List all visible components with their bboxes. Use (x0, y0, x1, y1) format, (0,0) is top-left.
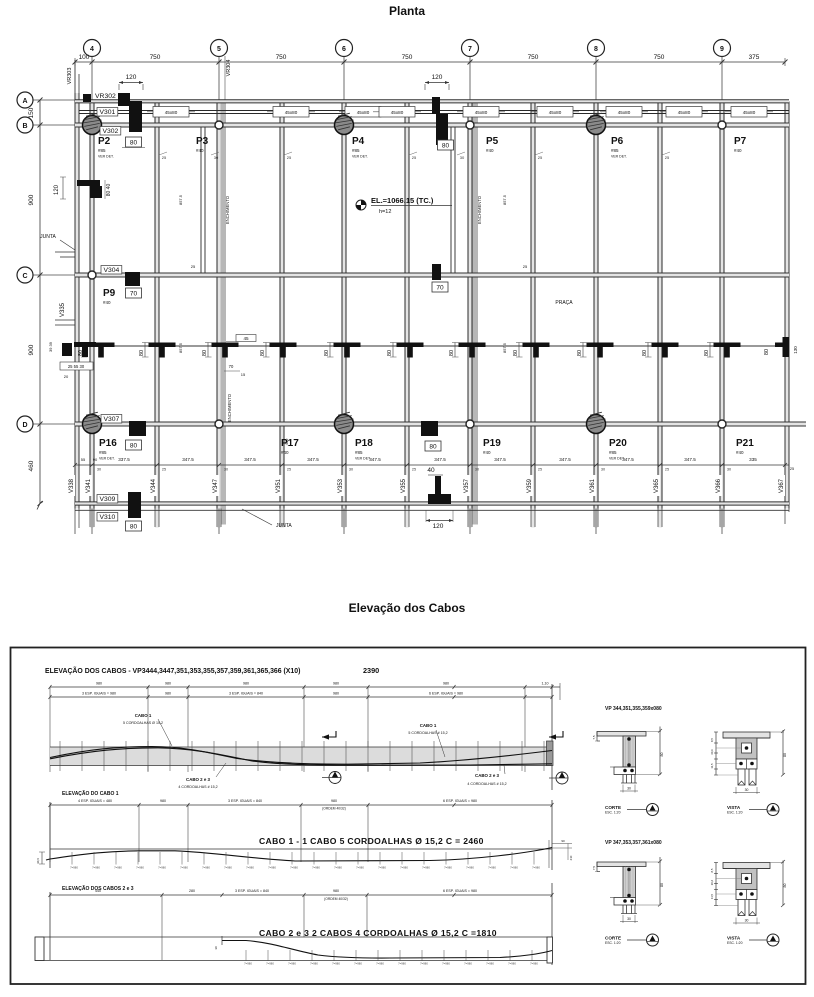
svg-text:80: 80 (260, 350, 266, 356)
svg-text:980: 980 (333, 682, 339, 686)
svg-text:80: 80 (642, 350, 648, 356)
svg-text:P4: P4 (352, 136, 365, 147)
svg-text:45: 45 (243, 336, 249, 341)
svg-text:7=980: 7=980 (400, 866, 408, 870)
svg-text:CABO 1: CABO 1 (135, 713, 152, 718)
svg-text:25: 25 (538, 468, 542, 472)
svg-text:90: 90 (93, 457, 98, 462)
svg-text:40: 40 (427, 467, 435, 474)
svg-text:7=980: 7=980 (224, 866, 232, 870)
svg-text:80: 80 (429, 444, 437, 451)
svg-text:7=980: 7=980 (508, 962, 516, 966)
svg-text:PRAÇA: PRAÇA (555, 300, 573, 306)
svg-text:80: 80 (764, 349, 770, 355)
svg-text:80: 80 (130, 524, 138, 531)
svg-text:347.5: 347.5 (684, 457, 696, 462)
svg-text:100: 100 (79, 54, 90, 61)
svg-text:7=980: 7=980 (466, 866, 474, 870)
svg-text:25: 25 (412, 468, 416, 472)
svg-text:11,5: 11,5 (710, 763, 714, 769)
svg-text:120: 120 (126, 74, 137, 81)
svg-text:80: 80 (783, 753, 787, 757)
svg-text:90: 90 (561, 839, 565, 843)
svg-text:25: 25 (538, 155, 543, 160)
svg-text:3 ESP. IGUAIS = 840: 3 ESP. IGUAIS = 840 (235, 889, 269, 893)
svg-text:3 ESP. IGUAIS = 840: 3 ESP. IGUAIS = 840 (229, 692, 263, 696)
svg-text:45x80: 45x80 (165, 110, 178, 115)
svg-text:80: 80 (783, 884, 787, 888)
svg-text:7=980: 7=980 (136, 866, 144, 870)
svg-text:30: 30 (727, 468, 731, 472)
svg-text:V365: V365 (654, 478, 660, 493)
svg-text:900: 900 (28, 344, 35, 355)
svg-text:80: 80 (704, 350, 710, 356)
svg-text:80: 80 (442, 143, 450, 150)
svg-text:120: 120 (432, 74, 443, 81)
svg-text:#40: #40 (483, 450, 491, 455)
svg-text:#85: #85 (609, 450, 617, 455)
svg-text:P20: P20 (609, 438, 627, 449)
svg-text:ESC. 1:20: ESC. 1:20 (605, 941, 621, 945)
svg-text:7=980: 7=980 (378, 866, 386, 870)
svg-text:V335: V335 (60, 302, 66, 317)
svg-text:VER DET.: VER DET. (611, 155, 627, 159)
svg-text:335: 335 (749, 457, 757, 462)
svg-text:7=980: 7=980 (488, 866, 496, 870)
svg-text:P21: P21 (736, 438, 754, 449)
svg-text:D: D (22, 422, 27, 429)
svg-text:30: 30 (224, 468, 228, 472)
svg-text:P3: P3 (196, 136, 209, 147)
svg-text:80: 80 (387, 350, 393, 356)
svg-text:11,5: 11,5 (710, 893, 714, 899)
svg-text:P16: P16 (99, 438, 117, 449)
svg-text:V359: V359 (527, 478, 533, 493)
svg-text:V344: V344 (151, 478, 157, 493)
svg-text:980: 980 (243, 682, 249, 686)
svg-text:4: 4 (90, 46, 94, 53)
svg-text:CABO 1 - 1 CABO 5 CORDOALHAS: CABO 1 - 1 CABO 5 CORDOALHAS Ø 15,2 C = … (259, 836, 484, 846)
svg-text:P2: P2 (98, 136, 111, 147)
svg-text:750: 750 (150, 54, 161, 61)
svg-text:7=980: 7=980 (310, 962, 318, 966)
svg-text:7=980: 7=980 (180, 866, 188, 870)
svg-text:V307: V307 (103, 416, 119, 423)
svg-text:VR303: VR303 (67, 68, 73, 85)
svg-text:80 40: 80 40 (106, 184, 112, 197)
svg-text:#85: #85 (611, 148, 619, 153)
svg-text:25: 25 (287, 468, 291, 472)
svg-text:440: 440 (95, 889, 101, 893)
svg-text:25: 25 (162, 468, 166, 472)
svg-text:ENCHIMENTO: ENCHIMENTO (477, 195, 482, 224)
svg-text:Elevação dos Cabos: Elevação dos Cabos (349, 601, 466, 615)
svg-text:45x80: 45x80 (391, 110, 404, 115)
svg-text:V338: V338 (69, 478, 75, 493)
svg-text:ESC. 1:20: ESC. 1:20 (605, 811, 621, 815)
svg-text:20: 20 (64, 374, 69, 379)
svg-text:460: 460 (28, 460, 35, 471)
svg-text:750: 750 (654, 54, 665, 61)
svg-text:7=980: 7=980 (442, 962, 450, 966)
svg-text:V341: V341 (86, 478, 92, 493)
svg-text:375: 375 (749, 54, 760, 61)
svg-text:5: 5 (217, 46, 221, 53)
svg-text:45x80: 45x80 (357, 110, 370, 115)
svg-text:7=980: 7=980 (266, 962, 274, 966)
svg-text:80: 80 (513, 350, 519, 356)
svg-text:VER DET.: VER DET. (98, 155, 114, 159)
svg-text:280: 280 (189, 889, 195, 893)
svg-text:80: 80 (449, 350, 455, 356)
svg-text:750: 750 (276, 54, 287, 61)
svg-text:P18: P18 (355, 438, 373, 449)
svg-text:7=980: 7=980 (332, 962, 340, 966)
svg-text:ELEVAÇÃO DOS CABOS - VP3444,34: ELEVAÇÃO DOS CABOS - VP3444,3447,351,353… (45, 666, 300, 675)
svg-text:347.5: 347.5 (307, 457, 319, 462)
svg-text:7=980: 7=980 (444, 866, 452, 870)
svg-text:857.5: 857.5 (502, 194, 507, 205)
svg-text:VER DET.: VER DET. (99, 457, 115, 461)
svg-text:7=980: 7=980 (312, 866, 320, 870)
svg-text:45x80: 45x80 (678, 110, 691, 115)
svg-text:7=980: 7=980 (202, 866, 210, 870)
svg-text:#40: #40 (196, 148, 204, 153)
svg-text:857.5: 857.5 (178, 342, 183, 353)
svg-text:Planta: Planta (389, 4, 425, 18)
svg-text:VR302: VR302 (95, 93, 116, 100)
svg-text:CORTE: CORTE (605, 805, 621, 810)
svg-text:980: 980 (160, 799, 166, 803)
svg-text:7=980: 7=980 (158, 866, 166, 870)
svg-text:347.5: 347.5 (244, 457, 256, 462)
svg-text:V357: V357 (464, 478, 470, 493)
svg-text:25: 25 (191, 264, 196, 269)
svg-text:7=980: 7=980 (92, 866, 100, 870)
svg-text:39 39: 39 39 (48, 341, 53, 352)
svg-text:V351: V351 (276, 478, 282, 493)
svg-text:30: 30 (460, 155, 465, 160)
svg-text:25: 25 (665, 468, 669, 472)
svg-text:347.5: 347.5 (622, 457, 634, 462)
svg-text:ENCHIMENTO: ENCHIMENTO (227, 393, 232, 422)
svg-text:CABO 2 e 3: CABO 2 e 3 (186, 777, 210, 782)
svg-text:7=980: 7=980 (510, 866, 518, 870)
svg-text:#85: #85 (99, 450, 107, 455)
svg-text:7: 7 (468, 46, 472, 53)
svg-text:980: 980 (333, 692, 339, 696)
svg-text:30,6: 30,6 (710, 879, 714, 885)
svg-text:B: B (22, 123, 27, 130)
svg-text:980: 980 (333, 889, 339, 893)
svg-text:70: 70 (436, 285, 444, 292)
svg-text:3 ESP. IGUAIS = 840: 3 ESP. IGUAIS = 840 (228, 799, 262, 803)
svg-text:ENCHIMENTO: ENCHIMENTO (225, 195, 230, 224)
svg-text:ESC. 1:20: ESC. 1:20 (727, 811, 743, 815)
svg-text:7=980: 7=980 (464, 962, 472, 966)
svg-text:CORTE: CORTE (605, 936, 621, 941)
svg-text:80: 80 (660, 883, 664, 887)
svg-text:150: 150 (28, 107, 35, 118)
svg-text:25: 25 (790, 467, 794, 471)
svg-text:120: 120 (54, 184, 60, 195)
svg-text:980: 980 (331, 799, 337, 803)
svg-text:4 ESP. IGUAIS = 480: 4 ESP. IGUAIS = 480 (78, 799, 112, 803)
svg-text:1,10: 1,10 (542, 682, 549, 686)
svg-text:410: 410 (284, 438, 289, 445)
svg-text:VP 347,353,357,361x080: VP 347,353,357,361x080 (605, 840, 662, 846)
svg-text:30: 30 (745, 788, 749, 792)
svg-text:7=980: 7=980 (376, 962, 384, 966)
svg-text:900: 900 (28, 194, 35, 205)
svg-text:P6: P6 (611, 136, 624, 147)
svg-text:80: 80 (324, 350, 330, 356)
svg-text:#40: #40 (734, 148, 742, 153)
svg-text:VP 344,351,355,359x080: VP 344,351,355,359x080 (605, 706, 662, 712)
svg-text:9: 9 (720, 46, 724, 53)
svg-text:7=980: 7=980 (354, 962, 362, 966)
svg-text:4 CORDOALHAS # 15,2: 4 CORDOALHAS # 15,2 (178, 785, 217, 789)
svg-text:120: 120 (433, 523, 444, 530)
svg-text:347.5: 347.5 (369, 457, 381, 462)
svg-text:EL.=1066.15 (TC.): EL.=1066.15 (TC.) (371, 196, 434, 205)
svg-text:30,6: 30,6 (36, 858, 40, 864)
svg-text:#40: #40 (281, 450, 289, 455)
svg-text:347.5: 347.5 (434, 457, 446, 462)
svg-text:7=980: 7=980 (486, 962, 494, 966)
svg-text:347.5: 347.5 (559, 457, 571, 462)
svg-text:6 ESP. IGUAIS = 980: 6 ESP. IGUAIS = 980 (443, 889, 477, 893)
svg-text:V366: V366 (716, 478, 722, 493)
svg-text:V309: V309 (99, 496, 115, 503)
svg-text:55: 55 (81, 457, 86, 462)
svg-text:P5: P5 (486, 136, 499, 147)
svg-text:30: 30 (627, 787, 631, 791)
svg-text:V310: V310 (99, 514, 115, 521)
svg-text:347.5: 347.5 (494, 457, 506, 462)
svg-text:V353: V353 (338, 478, 344, 493)
svg-text:(ORDEM 40/32): (ORDEM 40/32) (322, 807, 346, 811)
svg-text:V304: V304 (103, 267, 119, 274)
svg-text:6: 6 (342, 46, 346, 53)
svg-text:JUNTA: JUNTA (40, 234, 56, 240)
svg-text:#40: #40 (486, 148, 494, 153)
svg-text:30: 30 (349, 468, 353, 472)
svg-text:80: 80 (139, 350, 145, 356)
svg-text:#85: #85 (355, 450, 363, 455)
svg-text:980: 980 (443, 682, 449, 686)
svg-text:CABO 2 e 3 2 CABOS 4 CORDOAL: CABO 2 e 3 2 CABOS 4 CORDOALHAS Ø 15,2 C… (259, 928, 497, 938)
svg-text:h=12: h=12 (379, 209, 391, 215)
svg-text:45x80: 45x80 (475, 110, 488, 115)
svg-text:VR304: VR304 (226, 60, 232, 77)
svg-text:3 ESP. IGUAIS = 980: 3 ESP. IGUAIS = 980 (82, 692, 116, 696)
svg-text:7=980: 7=980 (114, 866, 122, 870)
svg-text:30,6: 30,6 (710, 749, 714, 755)
svg-text:VISTA: VISTA (727, 805, 741, 810)
svg-text:80: 80 (202, 350, 208, 356)
svg-text:15: 15 (241, 372, 246, 377)
svg-text:30: 30 (97, 468, 101, 472)
svg-text:980: 980 (165, 692, 171, 696)
svg-text:ELEVAÇÃO DO CABO 1: ELEVAÇÃO DO CABO 1 (62, 790, 119, 797)
svg-text:347.5: 347.5 (182, 457, 194, 462)
svg-text:70: 70 (229, 364, 234, 369)
svg-text:V347: V347 (213, 478, 219, 493)
svg-text:337.5: 337.5 (118, 457, 130, 462)
svg-text:45x80: 45x80 (549, 110, 562, 115)
svg-text:7=980: 7=980 (268, 866, 276, 870)
svg-text:80: 80 (577, 350, 583, 356)
svg-text:980: 980 (96, 682, 102, 686)
svg-text:V355: V355 (401, 478, 407, 493)
svg-text:V361: V361 (590, 478, 596, 493)
svg-text:(ORDEM 40/32): (ORDEM 40/32) (324, 897, 348, 901)
svg-text:7=980: 7=980 (70, 866, 78, 870)
svg-text:A: A (22, 98, 27, 105)
svg-text:7=980: 7=980 (290, 866, 298, 870)
svg-text:V301: V301 (99, 109, 115, 116)
svg-text:6 ESP. IGUAIS = 980: 6 ESP. IGUAIS = 980 (443, 799, 477, 803)
svg-text:80: 80 (130, 140, 138, 147)
svg-text:7=980: 7=980 (532, 866, 540, 870)
svg-text:VER DET.: VER DET. (352, 155, 368, 159)
svg-text:P9: P9 (103, 288, 116, 299)
svg-text:8,5: 8,5 (710, 738, 714, 742)
svg-text:7=980: 7=980 (356, 866, 364, 870)
svg-text:#85: #85 (98, 148, 106, 153)
svg-text:#40: #40 (103, 300, 111, 305)
svg-text:7=980: 7=980 (246, 866, 254, 870)
svg-text:45x80: 45x80 (285, 110, 298, 115)
svg-text:C: C (22, 273, 27, 280)
svg-text:30: 30 (627, 917, 631, 921)
svg-text:7=980: 7=980 (420, 962, 428, 966)
svg-text:8: 8 (594, 46, 598, 53)
svg-text:30: 30 (745, 919, 749, 923)
svg-text:30: 30 (601, 468, 605, 472)
svg-text:70: 70 (130, 291, 138, 298)
svg-text:CABO 1: CABO 1 (420, 723, 437, 728)
svg-text:45x80: 45x80 (618, 110, 631, 115)
svg-text:25 55 30: 25 55 30 (68, 364, 85, 369)
svg-text:25: 25 (162, 155, 167, 160)
svg-text:7=980: 7=980 (398, 962, 406, 966)
svg-text:130: 130 (793, 346, 798, 354)
svg-text:8,5: 8,5 (710, 868, 714, 872)
svg-text:4 CORDOALHAS # 15,2: 4 CORDOALHAS # 15,2 (467, 782, 506, 786)
svg-text:V302: V302 (102, 128, 118, 135)
svg-text:857.5: 857.5 (178, 194, 183, 205)
svg-text:5 CORDOALHAS Ø 15,2: 5 CORDOALHAS Ø 15,2 (123, 721, 163, 725)
svg-text:6 ESP. IGUAIS = 980: 6 ESP. IGUAIS = 980 (429, 692, 463, 696)
svg-text:7=980: 7=980 (422, 866, 430, 870)
svg-text:7=980: 7=980 (244, 962, 252, 966)
svg-text:80: 80 (130, 443, 138, 450)
svg-text:30: 30 (214, 946, 218, 950)
svg-text:V367: V367 (779, 478, 785, 493)
svg-text:30: 30 (214, 155, 219, 160)
svg-text:80: 80 (660, 753, 664, 757)
svg-text:VISTA: VISTA (727, 936, 741, 941)
svg-text:45x80: 45x80 (743, 110, 756, 115)
svg-text:7=980: 7=980 (288, 962, 296, 966)
svg-text:JUNTA: JUNTA (276, 523, 292, 529)
svg-text:#85: #85 (352, 148, 360, 153)
svg-text:30: 30 (475, 468, 479, 472)
svg-text:750: 750 (402, 54, 413, 61)
svg-text:25: 25 (523, 264, 528, 269)
svg-text:#40: #40 (736, 450, 744, 455)
svg-text:7=980: 7=980 (530, 962, 538, 966)
svg-text:25: 25 (287, 155, 292, 160)
svg-text:7=980: 7=980 (334, 866, 342, 870)
svg-text:210: 210 (569, 855, 573, 860)
svg-text:7,5: 7,5 (592, 735, 596, 740)
svg-text:750: 750 (528, 54, 539, 61)
svg-text:5 CORDOALHAS # 15,2: 5 CORDOALHAS # 15,2 (408, 731, 447, 735)
svg-text:980: 980 (165, 682, 171, 686)
svg-text:25: 25 (412, 155, 417, 160)
svg-text:857.5: 857.5 (502, 342, 507, 353)
svg-text:P19: P19 (483, 438, 501, 449)
svg-text:7,5: 7,5 (592, 866, 596, 871)
svg-text:25: 25 (665, 155, 670, 160)
svg-text:CABO 2 e 3: CABO 2 e 3 (475, 773, 499, 778)
svg-text:2390: 2390 (363, 666, 379, 675)
svg-text:P7: P7 (734, 136, 747, 147)
svg-text:ESC. 1:20: ESC. 1:20 (727, 941, 743, 945)
